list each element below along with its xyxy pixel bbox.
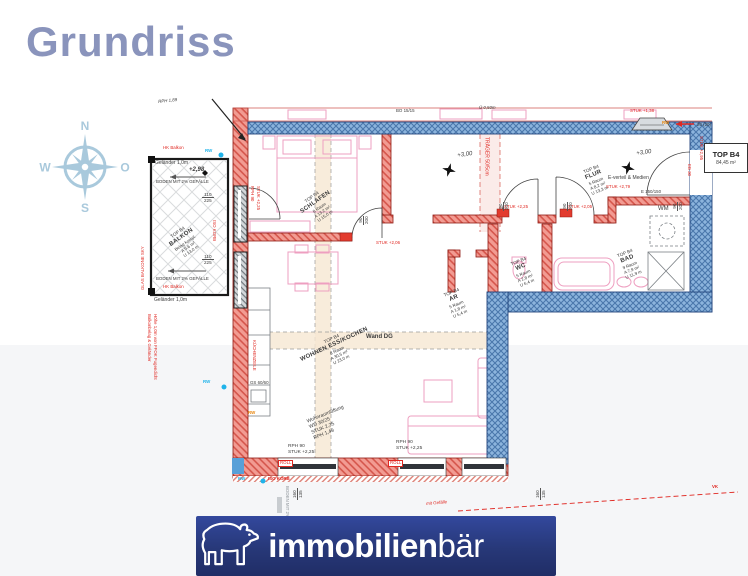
compass-icon: N O S W [39,119,129,215]
dim-balcony-bottom: 110 225 [202,254,214,266]
label-e150: E 150/150 [641,190,661,195]
dim-value: 135 [298,488,303,500]
label-traeger: TRÄGER 50/5cm [483,137,489,176]
compass-w: W [39,161,51,175]
label-iso-korb-left: ISO KORB [211,220,216,241]
dim-value: 225 [202,260,214,265]
label-balcony-note2: Höhe 1,0m von FFOK Fugendicht [152,314,157,380]
floor-plan-page: N O S W Grundriss RPH 1,89 HK Balkon RW … [0,0,748,576]
unit-area: 84,45 m² [716,160,736,166]
label-wm: WM [658,206,669,213]
label-glas-balkone: GLAS BALKONE SKY [141,246,146,290]
label-balcony-note1: Balkonbelag & Geländer [146,314,151,362]
label-rw-topright: RW [662,121,669,126]
compass-o: O [120,161,129,175]
label-bo1515: BO 15/15 [396,109,415,114]
label-vk: VK [712,485,718,490]
label-hk-balkon-bottom: HK Balkon [163,285,184,290]
dim-window-b: 160 135 [535,488,547,500]
dim-bedroom-door: 90 200 [358,214,370,226]
label-dim2020: 20 (20) [697,123,711,128]
dim-balcony-top: 110 225 [202,192,214,204]
label-kueche: KÜCHENZEILE [251,340,256,371]
label-everteil: E-verteil & Medien [608,176,649,182]
label-rw-mid: RW [203,380,210,385]
compass-s: S [81,201,89,215]
dim-entry-door: 90 200 [672,200,684,212]
label-rw-bottom: RW [238,477,245,482]
label-slope-top: BODEN MIT 2% GEFÄLLE [156,180,209,185]
floor-plan-drawing: N O S W [0,0,748,576]
label-gs: GS 60/60 [250,381,269,386]
logo-text-bold: immobilien [268,527,437,564]
dim-value: 200 [568,200,573,212]
dim-bad-door: 90 200 [562,200,574,212]
label-railing-top: Geländer 1,0m [155,161,188,167]
label-rw-top: RW [205,149,212,154]
company-logo: immobilienbär [196,516,556,576]
dim-value: 135 [541,488,546,500]
label-rph90-a: RPH 90 STUK +2,25 [288,444,314,456]
logo-text: immobilienbär [268,527,483,565]
label-rph90-wall: RPH 90 [249,186,254,201]
label-ue-dim: Ü 0,50m [479,106,496,111]
label-slope-bottom: BODEN MIT 2% GEFÄLLE [156,277,209,282]
label-stuk206: STUK +2,06 [376,241,400,246]
page-title: Grundriss [26,18,236,66]
label-roll-a: ROLL [278,460,293,467]
label-level-298: +2,98 [189,167,204,174]
label-roll-b: ROLL [388,460,403,467]
label: STUK +2,25 [288,450,314,456]
label-railing-bottom: Geländer 1,0m [154,298,187,304]
label-eb30: EB 30 [686,164,691,176]
label-boden-vertical: BODEN MIT 2% [284,486,289,518]
label-stuk225-wall: STUK +2,25 [255,186,260,210]
logo-text-light: bär [437,527,483,564]
label-hk-balkon-top: HK Balkon [163,146,184,151]
dim-window-a: 160 135 [292,488,304,500]
label-iso-korb-bottom: ISO KORB [268,477,290,482]
label-stuk279: STUK +2,79 [606,185,630,190]
dim-wc-door: 90 200 [498,200,510,212]
dim-value: 200 [678,200,683,212]
dim-value: 200 [504,200,509,212]
unit-info-box: TOP B4 84,45 m² [704,143,748,173]
label-rw-kitchen: RW [248,411,255,416]
bear-icon [196,516,266,568]
label: STUK +2,25 [396,446,422,452]
dim-value: 225 [202,198,214,203]
unit-name: TOP B4 [713,150,740,159]
label-stuk295: STUK +2,95 [698,136,703,160]
label-rph90-b: RPH 90 STUK +2,25 [396,440,422,452]
compass-n: N [81,119,90,133]
label-stuk138: STUK +1,38 [630,109,654,114]
dim-value: 200 [364,214,369,226]
